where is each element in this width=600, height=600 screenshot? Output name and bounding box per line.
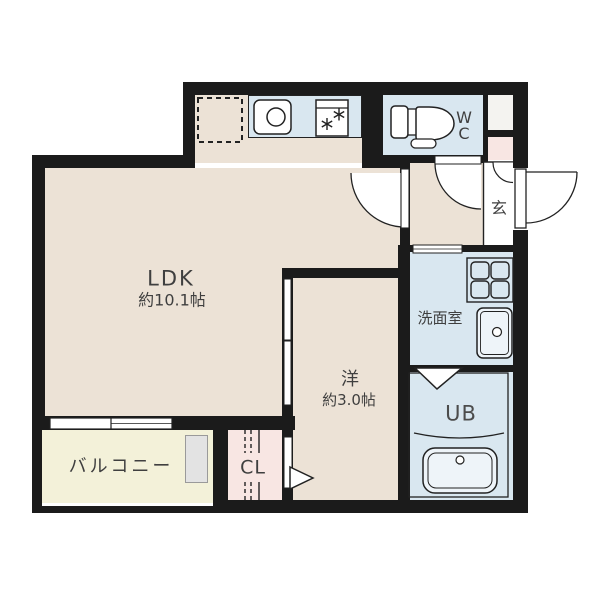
stove-icon bbox=[316, 100, 348, 136]
bathtub-icon bbox=[409, 373, 508, 497]
wc-door-swing-icon bbox=[435, 156, 481, 209]
toilet-icon bbox=[391, 106, 454, 148]
bath-folding-door-triangle-icon bbox=[415, 368, 462, 389]
bedroom-size-label: 約3.0帖 bbox=[322, 391, 376, 409]
closet-door-icon bbox=[284, 437, 313, 489]
entrance-label: 玄 bbox=[491, 198, 507, 217]
entrance-door-swing-icon bbox=[515, 169, 577, 228]
washroom-door-icon bbox=[413, 245, 462, 253]
floorplan: LDK 約10.1帖 洋 約3.0帖 バルコニー CL 洗面室 UB W C 玄 bbox=[0, 0, 600, 600]
ldk-door-swing-icon bbox=[351, 169, 409, 228]
wc-label-line2: C bbox=[456, 126, 472, 142]
closet-label: CL bbox=[240, 457, 266, 480]
storage-door-swing-icon bbox=[493, 163, 513, 183]
washing-machine-pan-icon bbox=[467, 258, 513, 302]
bedroom-sliding-door-icon bbox=[284, 279, 291, 405]
washbasin-icon bbox=[477, 308, 512, 358]
ldk-size-label: 約10.1帖 bbox=[138, 290, 206, 309]
ldk-label: LDK bbox=[147, 266, 195, 291]
washroom-label: 洗面室 bbox=[417, 309, 462, 327]
bedroom-label: 洋 bbox=[341, 369, 359, 391]
bath-label: UB bbox=[445, 401, 477, 426]
balcony-window-icon bbox=[50, 418, 172, 429]
fridge-space-icon bbox=[198, 98, 242, 142]
fixtures-layer bbox=[0, 0, 600, 600]
balcony-label: バルコニー bbox=[69, 456, 174, 478]
sink-icon bbox=[254, 100, 291, 134]
wc-label: W C bbox=[456, 110, 472, 142]
